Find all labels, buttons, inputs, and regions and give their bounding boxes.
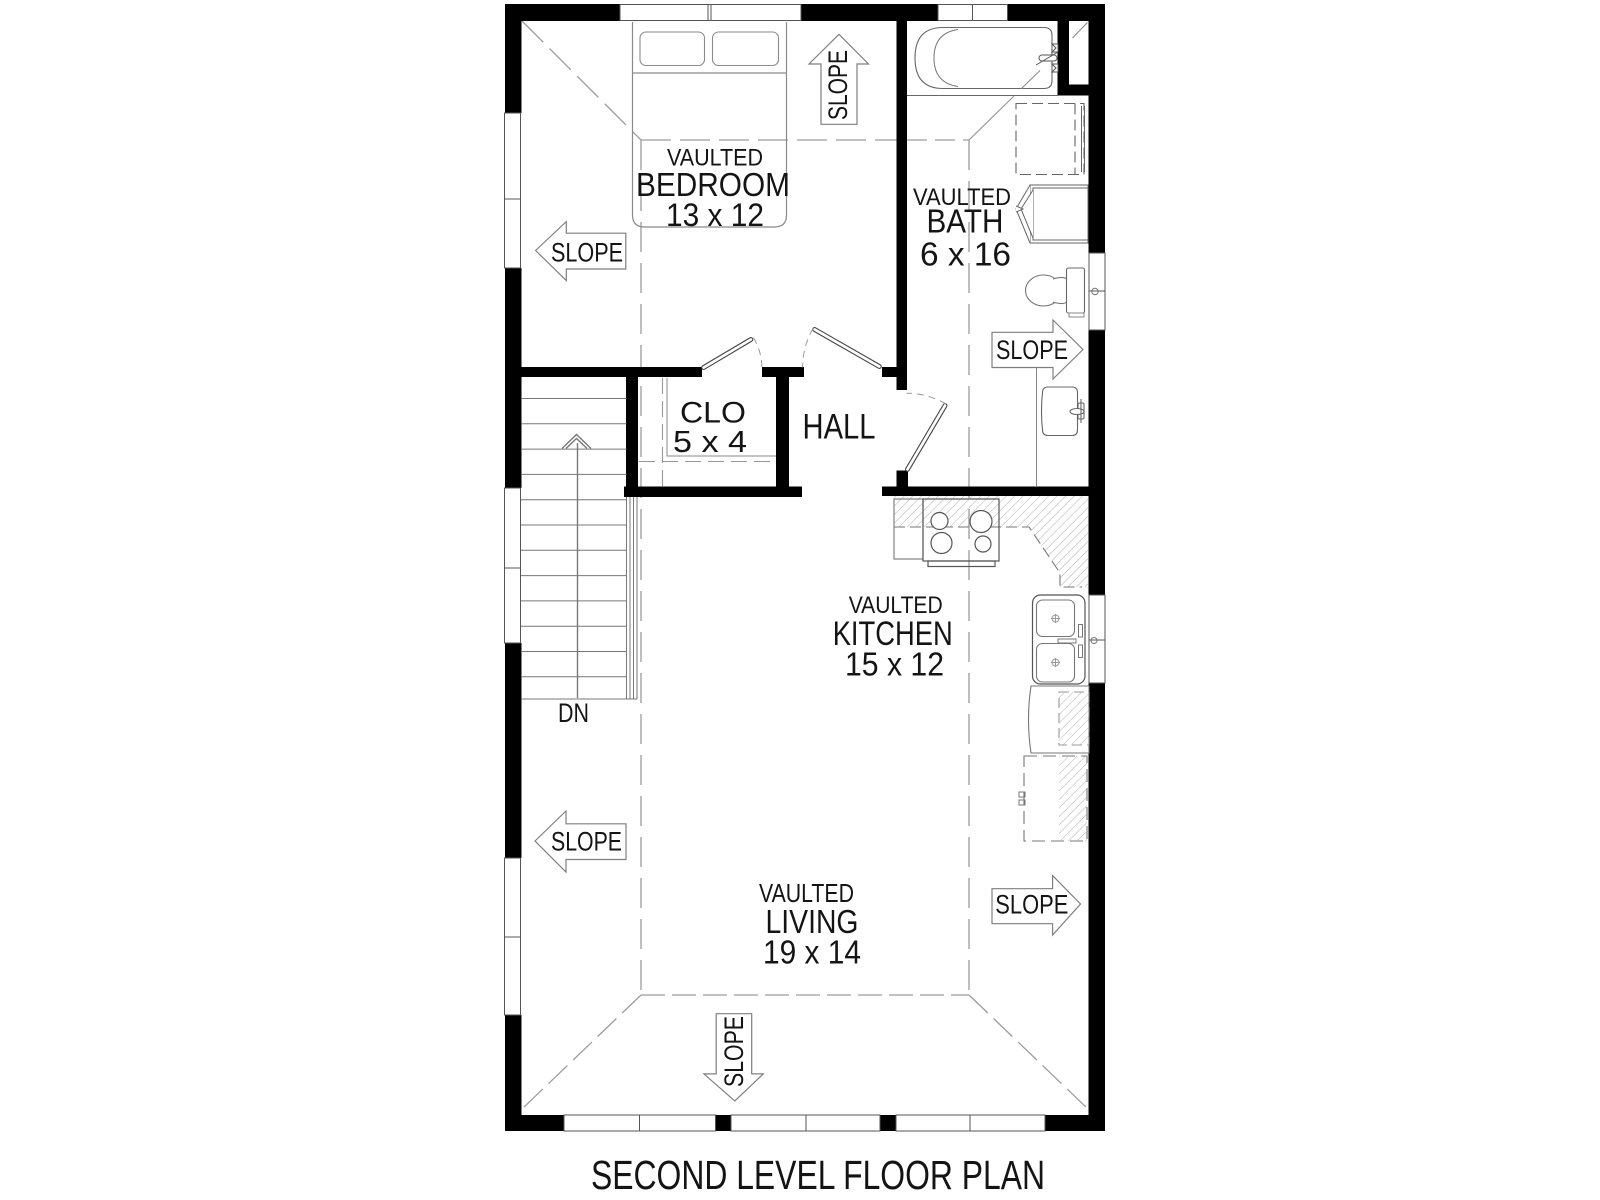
svg-text:5 x 4: 5 x 4: [673, 424, 747, 459]
svg-text:SECOND LEVEL FLOOR PLAN: SECOND LEVEL FLOOR PLAN: [591, 1152, 1045, 1198]
svg-text:SLOPE: SLOPE: [996, 335, 1068, 365]
svg-text:SLOPE: SLOPE: [551, 827, 622, 857]
svg-text:6 x 16: 6 x 16: [920, 236, 1011, 273]
svg-text:SLOPE: SLOPE: [719, 1016, 749, 1087]
svg-text:DN: DN: [558, 698, 589, 728]
svg-text:HALL: HALL: [803, 408, 876, 447]
svg-text:SLOPE: SLOPE: [995, 890, 1068, 920]
svg-text:BATH: BATH: [927, 203, 1004, 240]
svg-text:13 x 12: 13 x 12: [666, 197, 764, 233]
svg-text:19 x 14: 19 x 14: [763, 934, 861, 971]
svg-text:15 x 12: 15 x 12: [845, 646, 944, 683]
svg-text:SLOPE: SLOPE: [551, 238, 623, 268]
svg-text:SLOPE: SLOPE: [823, 50, 853, 120]
